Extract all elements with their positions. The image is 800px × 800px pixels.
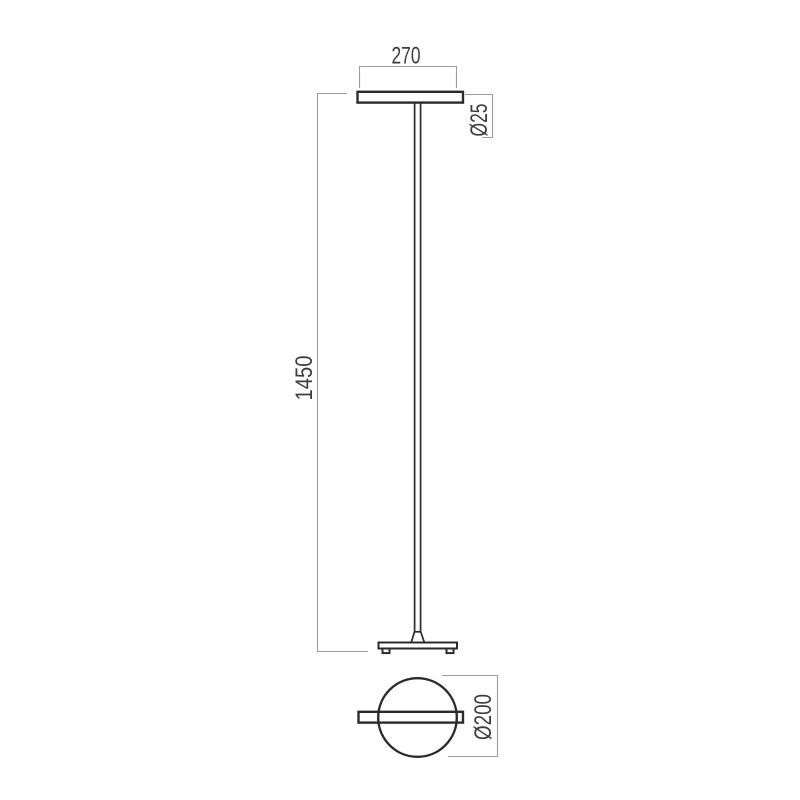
technical-drawing: 270 Ø25 1450 Ø200 [0,0,800,800]
lamp-head-plate [358,92,464,103]
base-diameter-label: Ø200 [470,694,497,740]
dim-height-bracket [318,94,369,652]
pole-diameter-label: Ø25 [466,104,493,137]
head-width-label: 270 [392,43,421,70]
pole-base-joint [411,632,424,643]
dimension-lines [318,67,498,757]
height-label: 1450 [291,356,318,401]
dim-head-width-bracket [360,67,457,89]
lamp-pole [415,103,421,632]
base-circle [378,678,457,757]
base-foot-right [447,649,454,654]
lamp-side-view [358,92,464,653]
dim-height [318,94,369,652]
base-foot-left [383,649,390,654]
dim-head-width [360,67,457,89]
dimension-labels: 270 Ø25 1450 Ø200 [291,43,497,741]
base-top-view [359,678,464,757]
